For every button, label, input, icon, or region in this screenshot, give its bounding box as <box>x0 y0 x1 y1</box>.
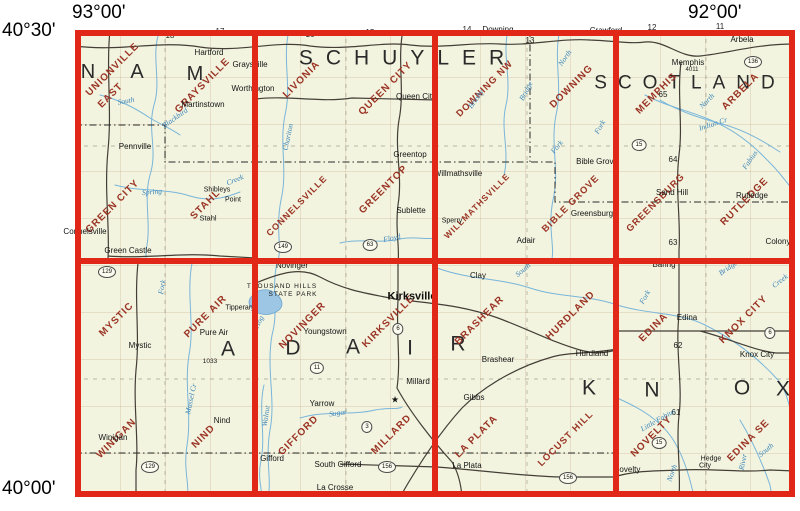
quad-cell-r2c2[interactable] <box>255 261 435 497</box>
latitude-north-label: 40°30' <box>2 20 56 42</box>
quad-cell-r2c3[interactable] <box>435 261 616 497</box>
quad-cell-r1c3[interactable] <box>435 30 616 261</box>
latitude-south-label: 40°00' <box>2 478 56 500</box>
quad-cell-r2c1[interactable] <box>75 261 255 497</box>
quad-cells-layer <box>0 0 800 511</box>
quad-cell-r1c4[interactable] <box>616 30 795 261</box>
quad-cell-r2c4[interactable] <box>616 261 795 497</box>
quad-cell-r1c1[interactable] <box>75 30 255 261</box>
quad-cell-r1c2[interactable] <box>255 30 435 261</box>
longitude-east-label: 92°00' <box>688 2 742 24</box>
map-index-stage: NAMSCHUYLERSCOTLANDADAIRKNOXUNIONVILLEEA… <box>0 0 800 511</box>
longitude-west-label: 93°00' <box>72 2 126 24</box>
